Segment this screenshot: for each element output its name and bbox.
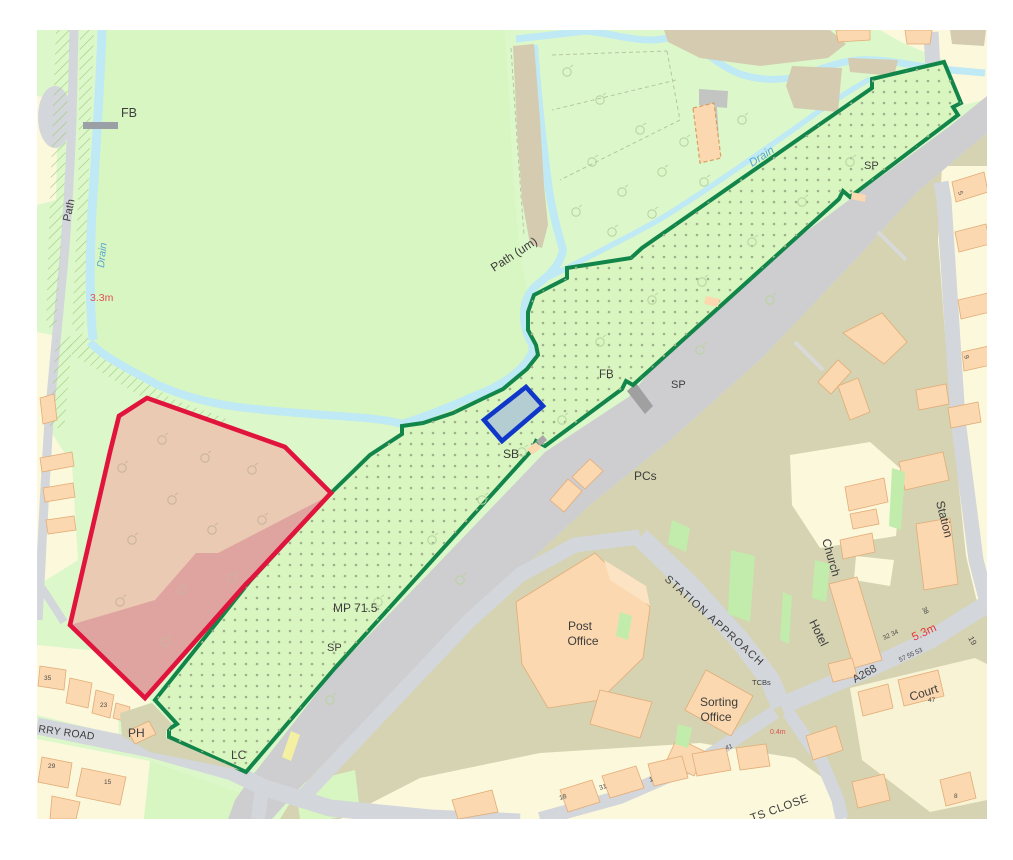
svg-text:SB: SB (503, 447, 519, 461)
svg-text:Office: Office (700, 710, 731, 724)
svg-text:3.3m: 3.3m (90, 292, 114, 304)
svg-text:29: 29 (48, 763, 56, 770)
svg-text:35: 35 (44, 675, 52, 682)
svg-text:Sorting: Sorting (700, 695, 738, 709)
svg-text:FB: FB (121, 106, 137, 120)
svg-text:47: 47 (928, 697, 936, 704)
svg-text:LC: LC (231, 748, 247, 762)
svg-text:Office: Office (567, 634, 598, 648)
svg-text:MP 71.5: MP 71.5 (333, 601, 378, 615)
svg-text:SP: SP (864, 160, 879, 172)
svg-text:PH: PH (128, 726, 145, 740)
svg-text:Post: Post (568, 619, 593, 633)
svg-text:FB: FB (599, 369, 614, 381)
svg-text:TCBs: TCBs (752, 678, 771, 687)
svg-text:PCs: PCs (634, 469, 657, 483)
svg-text:0.4m: 0.4m (770, 729, 786, 736)
svg-text:SP: SP (671, 379, 686, 391)
svg-text:SP: SP (327, 642, 342, 654)
svg-text:23: 23 (100, 702, 108, 709)
svg-text:8: 8 (954, 793, 958, 800)
svg-text:15: 15 (104, 779, 112, 786)
